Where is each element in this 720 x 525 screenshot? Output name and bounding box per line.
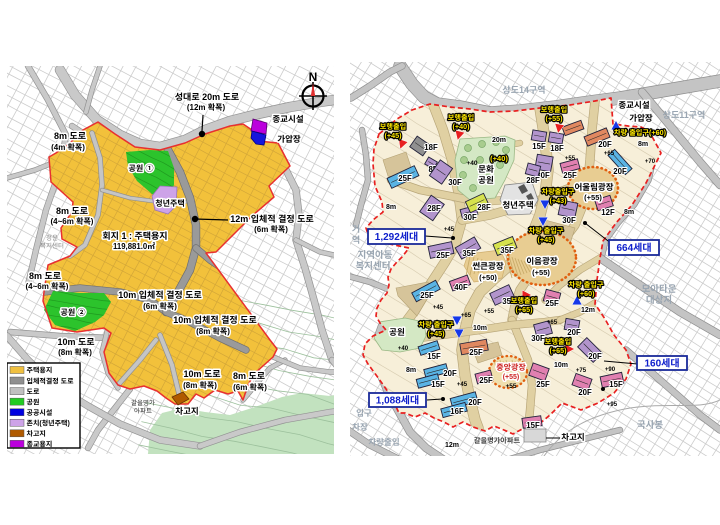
svg-text:아파트: 아파트 [134, 407, 152, 415]
svg-text:119,881.0㎡: 119,881.0㎡ [113, 242, 155, 251]
svg-text:보행출입: 보행출입 [380, 122, 406, 131]
svg-text:(+55): (+55) [503, 374, 520, 381]
svg-text:공원: 공원 [27, 398, 40, 406]
svg-text:8m: 8m [406, 367, 416, 374]
svg-text:보행출입: 보행출입 [448, 113, 474, 122]
svg-text:15F: 15F [609, 380, 623, 389]
svg-text:보행출입: 보행출입 [545, 337, 571, 346]
svg-text:차량출입: 차량출입 [368, 437, 399, 447]
svg-text:30F: 30F [531, 334, 545, 343]
svg-text:국사봉: 국사봉 [637, 420, 663, 431]
svg-text:12m: 12m [445, 442, 459, 449]
svg-text:썬큰광장: 썬큰광장 [472, 261, 503, 271]
svg-text:갈을명가아파트: 갈을명가아파트 [474, 436, 521, 445]
svg-text:공원 ①: 공원 ① [129, 164, 154, 173]
svg-text:8m 도로: 8m 도로 [29, 271, 61, 281]
svg-text:차장: 차장 [352, 422, 368, 432]
svg-text:종교용지: 종교용지 [27, 441, 53, 449]
svg-text:1,292세대: 1,292세대 [375, 231, 418, 243]
svg-text:664세대: 664세대 [616, 242, 651, 254]
svg-text:10m 도로: 10m 도로 [183, 369, 220, 379]
svg-text:(+40): (+40) [453, 122, 471, 131]
svg-text:20F: 20F [567, 328, 581, 337]
svg-text:40F: 40F [454, 283, 468, 292]
svg-text:25F: 25F [563, 171, 577, 180]
svg-text:+65: +65 [604, 151, 615, 157]
svg-text:25F: 25F [436, 251, 450, 260]
svg-text:8m 도로: 8m 도로 [56, 206, 88, 216]
svg-text:(+40): (+40) [490, 154, 508, 163]
svg-text:+40: +40 [398, 346, 409, 352]
svg-text:공공시설: 공공시설 [27, 409, 53, 417]
svg-text:이음광장: 이음광장 [526, 256, 557, 266]
svg-text:18F: 18F [424, 143, 438, 152]
svg-text:보행출입: 보행출입 [541, 105, 567, 114]
svg-text:8m 도로: 8m 도로 [54, 131, 86, 141]
svg-text:(6m 확폭): (6m 확폭) [254, 225, 288, 234]
svg-text:입체적결정 도로: 입체적결정 도로 [27, 377, 75, 385]
svg-text:35F: 35F [462, 249, 476, 258]
svg-text:도로: 도로 [27, 388, 40, 396]
svg-text:(+50): (+50) [479, 273, 497, 282]
svg-text:청년주택: 청년주택 [155, 199, 184, 208]
svg-text:25F: 25F [479, 376, 493, 385]
svg-text:(+55): (+55) [546, 114, 564, 123]
svg-text:(+45): (+45) [385, 131, 403, 140]
svg-text:거: 거 [352, 224, 360, 234]
svg-text:10m 입체적 결정 도로: 10m 입체적 결정 도로 [118, 290, 201, 300]
svg-text:어울림광장: 어울림광장 [574, 182, 613, 192]
svg-text:성대로 20m 도로: 성대로 20m 도로 [175, 92, 239, 102]
svg-text:15F: 15F [427, 352, 441, 361]
svg-text:8m: 8m [386, 204, 396, 211]
svg-text:35F: 35F [500, 246, 514, 255]
svg-text:+55: +55 [484, 309, 495, 315]
svg-text:상도14구역: 상도14구역 [502, 85, 545, 95]
svg-text:15F: 15F [431, 380, 445, 389]
svg-text:(+45): (+45) [538, 235, 556, 244]
svg-text:10m: 10m [473, 325, 487, 332]
svg-text:차고지: 차고지 [27, 430, 46, 438]
svg-text:8m 도로: 8m 도로 [233, 371, 265, 381]
svg-text:보행출입: 보행출입 [511, 296, 537, 305]
svg-text:20F: 20F [468, 398, 482, 407]
svg-text:가압장: 가압장 [629, 113, 653, 123]
svg-text:(+45): (+45) [428, 329, 446, 338]
svg-text:16F: 16F [450, 407, 464, 416]
svg-text:30F: 30F [463, 213, 477, 222]
svg-text:8m: 8m [624, 209, 634, 216]
svg-text:10m 도로: 10m 도로 [57, 337, 94, 347]
svg-text:(8m 확폭): (8m 확폭) [183, 381, 217, 390]
svg-text:18F: 18F [550, 144, 564, 153]
svg-text:갈을명가: 갈을명가 [131, 399, 155, 407]
svg-text:복지센터: 복지센터 [40, 242, 64, 250]
svg-text:입구: 입구 [356, 408, 372, 418]
svg-text:20F: 20F [598, 140, 612, 149]
svg-text:모아타운: 모아타운 [642, 284, 677, 295]
svg-text:차량 출입구: 차량 출입구 [528, 226, 563, 235]
svg-text:(12m 확폭): (12m 확폭) [187, 103, 226, 112]
svg-text:30F: 30F [448, 178, 462, 187]
svg-text:28F: 28F [526, 176, 540, 185]
svg-text:지역아동: 지역아동 [358, 250, 393, 261]
svg-text:(4~6m 확폭): (4~6m 확폭) [26, 282, 69, 291]
svg-text:15F: 15F [532, 142, 546, 151]
svg-text:문화: 문화 [478, 164, 494, 174]
svg-text:역: 역 [352, 235, 360, 245]
svg-text:종교시설: 종교시설 [618, 100, 649, 110]
svg-text:(+60): (+60) [578, 289, 596, 298]
svg-text:가압장: 가압장 [277, 134, 301, 144]
svg-text:28F: 28F [477, 203, 491, 212]
svg-text:종교시설: 종교시설 [272, 114, 303, 124]
svg-text:+45: +45 [433, 305, 444, 311]
svg-text:N: N [309, 70, 318, 84]
svg-text:1,088세대: 1,088세대 [376, 395, 419, 407]
svg-text:(4m 확폭): (4m 확폭) [51, 143, 85, 152]
svg-text:(8m 확폭): (8m 확폭) [58, 348, 92, 357]
svg-text:공원: 공원 [389, 327, 405, 337]
svg-text:존치(청년주택): 존치(청년주택) [27, 419, 70, 427]
svg-text:20F: 20F [588, 352, 602, 361]
svg-text:(4~6m 확폭): (4~6m 확폭) [51, 217, 94, 226]
svg-text:160세대: 160세대 [644, 358, 679, 370]
svg-text:공원 ②: 공원 ② [61, 308, 86, 317]
svg-text:20F: 20F [443, 369, 457, 378]
svg-text:차량 출입구: 차량 출입구 [568, 280, 603, 289]
svg-text:회지 1 : 주택용지: 회지 1 : 주택용지 [102, 231, 167, 241]
svg-text:주택용지: 주택용지 [27, 367, 53, 375]
svg-text:청운: 청운 [46, 234, 58, 242]
svg-text:(+65): (+65) [550, 346, 568, 355]
svg-text:+70: +70 [645, 159, 656, 165]
svg-text:+40: +40 [466, 160, 477, 167]
svg-text:25F: 25F [545, 299, 559, 308]
svg-text:대상지: 대상지 [646, 295, 672, 306]
svg-text:25F: 25F [536, 380, 550, 389]
svg-text:+45: +45 [444, 227, 455, 233]
svg-text:중앙광장: 중앙광장 [496, 363, 526, 372]
svg-text:공원: 공원 [478, 175, 494, 185]
svg-text:25F: 25F [398, 174, 412, 183]
svg-text:(8m 확폭): (8m 확폭) [196, 327, 230, 336]
svg-text:+55: +55 [505, 383, 516, 390]
svg-text:(6m 확폭): (6m 확폭) [233, 383, 267, 392]
svg-text:25F: 25F [420, 291, 434, 300]
svg-text:12F: 12F [601, 208, 615, 217]
svg-text:20F: 20F [578, 388, 592, 397]
svg-text:20m: 20m [492, 137, 506, 144]
svg-text:30F: 30F [562, 216, 576, 225]
svg-text:10m 입체적 결정 도로: 10m 입체적 결정 도로 [173, 315, 256, 325]
svg-text:+65: +65 [547, 320, 558, 326]
svg-text:(+43): (+43) [550, 196, 568, 205]
svg-text:12m 입체적 결정 도로: 12m 입체적 결정 도로 [230, 214, 313, 224]
svg-text:+65: +65 [461, 313, 472, 319]
svg-text:상도11구역: 상도11구역 [663, 110, 706, 120]
svg-text:차고지: 차고지 [175, 406, 198, 416]
svg-text:복지센터: 복지센터 [356, 261, 391, 272]
svg-text:+90: +90 [605, 367, 616, 373]
svg-text:+55: +55 [565, 156, 576, 162]
svg-text:차고지: 차고지 [561, 432, 584, 442]
svg-text:+95: +95 [607, 402, 618, 408]
svg-text:28F: 28F [427, 204, 441, 213]
svg-text:(+55): (+55) [532, 268, 550, 277]
svg-text:(+65): (+65) [516, 305, 534, 314]
svg-text:25F: 25F [469, 348, 483, 357]
svg-text:(6m 확폭): (6m 확폭) [143, 302, 177, 311]
svg-text:10m: 10m [554, 362, 568, 369]
svg-text:12m: 12m [581, 307, 595, 314]
svg-text:차량 출입구: 차량 출입구 [418, 320, 453, 329]
svg-text:(+55): (+55) [584, 193, 602, 202]
svg-text:8m: 8m [638, 141, 648, 148]
svg-text:차량 출입구(+60): 차량 출입구(+60) [614, 128, 667, 137]
svg-text:+45: +45 [457, 382, 468, 388]
svg-text:청년주택: 청년주택 [502, 200, 533, 210]
svg-text:+75: +75 [576, 368, 587, 374]
svg-text:차량출입구: 차량출입구 [541, 187, 574, 196]
svg-text:20F: 20F [613, 167, 627, 176]
